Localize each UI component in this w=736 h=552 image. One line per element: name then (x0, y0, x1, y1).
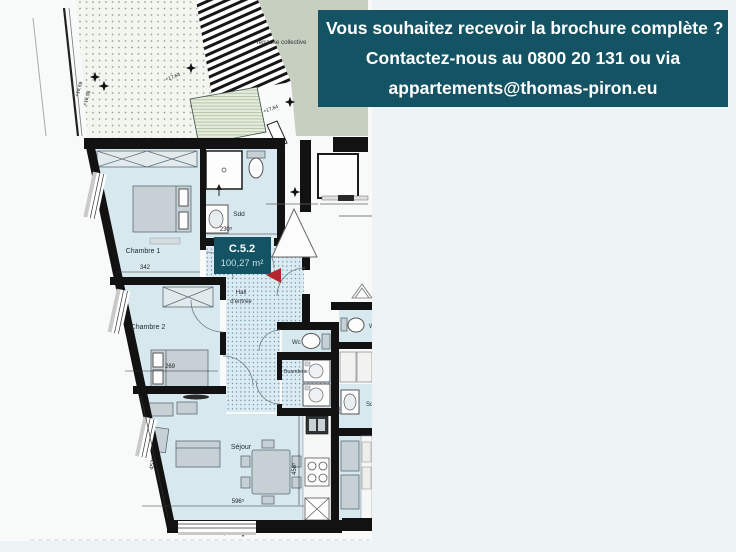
flyer-screen: Terrasse collective +16,69 +16,56 +17,64… (0, 0, 736, 552)
dim-chambre2: 269 (165, 364, 176, 370)
neighbor-dim: 240 (336, 406, 341, 414)
tv-unit-icon (149, 402, 197, 416)
room-label-sejour: Séjour (231, 444, 252, 451)
room-label-chambre1: Chambre 1 (126, 248, 161, 255)
room-label-wc: Wc (292, 340, 301, 346)
dim-chambre1: 342 (140, 265, 151, 271)
shower-icon (206, 151, 242, 189)
banner-line-2: Contactez-nous au 0800 20 131 ou via (318, 45, 728, 72)
terrasse-label: Terrasse collective (256, 39, 307, 46)
wardrobe-icon (97, 151, 197, 167)
dim-sejour-width: 596⁵ (232, 498, 245, 505)
banner-line-3: appartements@thomas-piron.eu (318, 75, 728, 102)
toilet-icon (302, 334, 330, 350)
unit-area: 100,27 m² (221, 258, 264, 269)
unit-badge: C.5.2 100,27 m² (214, 237, 271, 274)
contact-banner: Vous souhaitez recevoir la brochure comp… (318, 10, 728, 107)
window-sejour-south (178, 521, 256, 535)
room-label-buanderie: Buanderie (284, 369, 308, 375)
dim-sejour-depth: 458⁵ (291, 462, 298, 475)
unit-code: C.5.2 (229, 243, 255, 255)
washbasin-icon (341, 390, 359, 414)
bed-icon (151, 350, 208, 387)
kitchen-sink-icon (306, 416, 328, 434)
neighbor-closet (340, 352, 356, 382)
terrace-gravel-pattern (76, 0, 214, 140)
toilet-icon (341, 318, 364, 332)
doormat-icon (183, 395, 209, 400)
room-label-hall-2: d'entrée (230, 299, 252, 305)
wardrobe-icon (163, 287, 213, 307)
room-label-hall-1: Hall (236, 290, 246, 296)
banner-line-1: Vous souhaitez recevoir la brochure comp… (318, 15, 728, 42)
neighbor-closet (357, 352, 372, 382)
room-label-sdd: Sdd (233, 211, 245, 218)
dishwasher-icon (305, 498, 329, 520)
dim-sdd: 230⁵ (220, 226, 233, 233)
room-label-chambre2: Chambre 2 (131, 324, 166, 331)
stove-icon (305, 458, 329, 486)
